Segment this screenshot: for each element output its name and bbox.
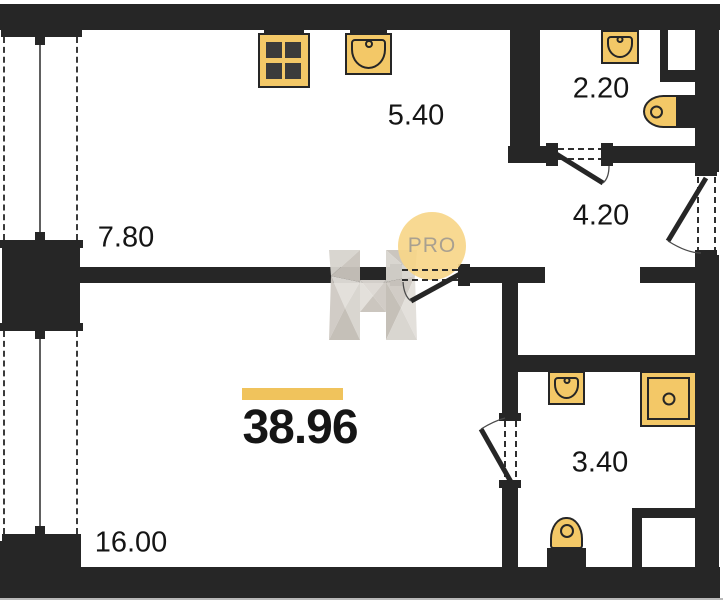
doors-overlay xyxy=(0,0,723,600)
door-leaf-bathroom-bottom xyxy=(481,429,511,482)
floor-plan: 7.80 5.40 2.20 4.20 3.40 16.00 38.96 PRO xyxy=(0,0,723,600)
door-leaf-entrance xyxy=(668,178,706,241)
door-leaf-living xyxy=(411,273,462,301)
door-leaf-bathroom-top xyxy=(553,152,603,183)
door-leaves xyxy=(411,152,706,482)
door-swing-arcs xyxy=(403,166,701,429)
door-opening-dashes xyxy=(402,149,715,480)
